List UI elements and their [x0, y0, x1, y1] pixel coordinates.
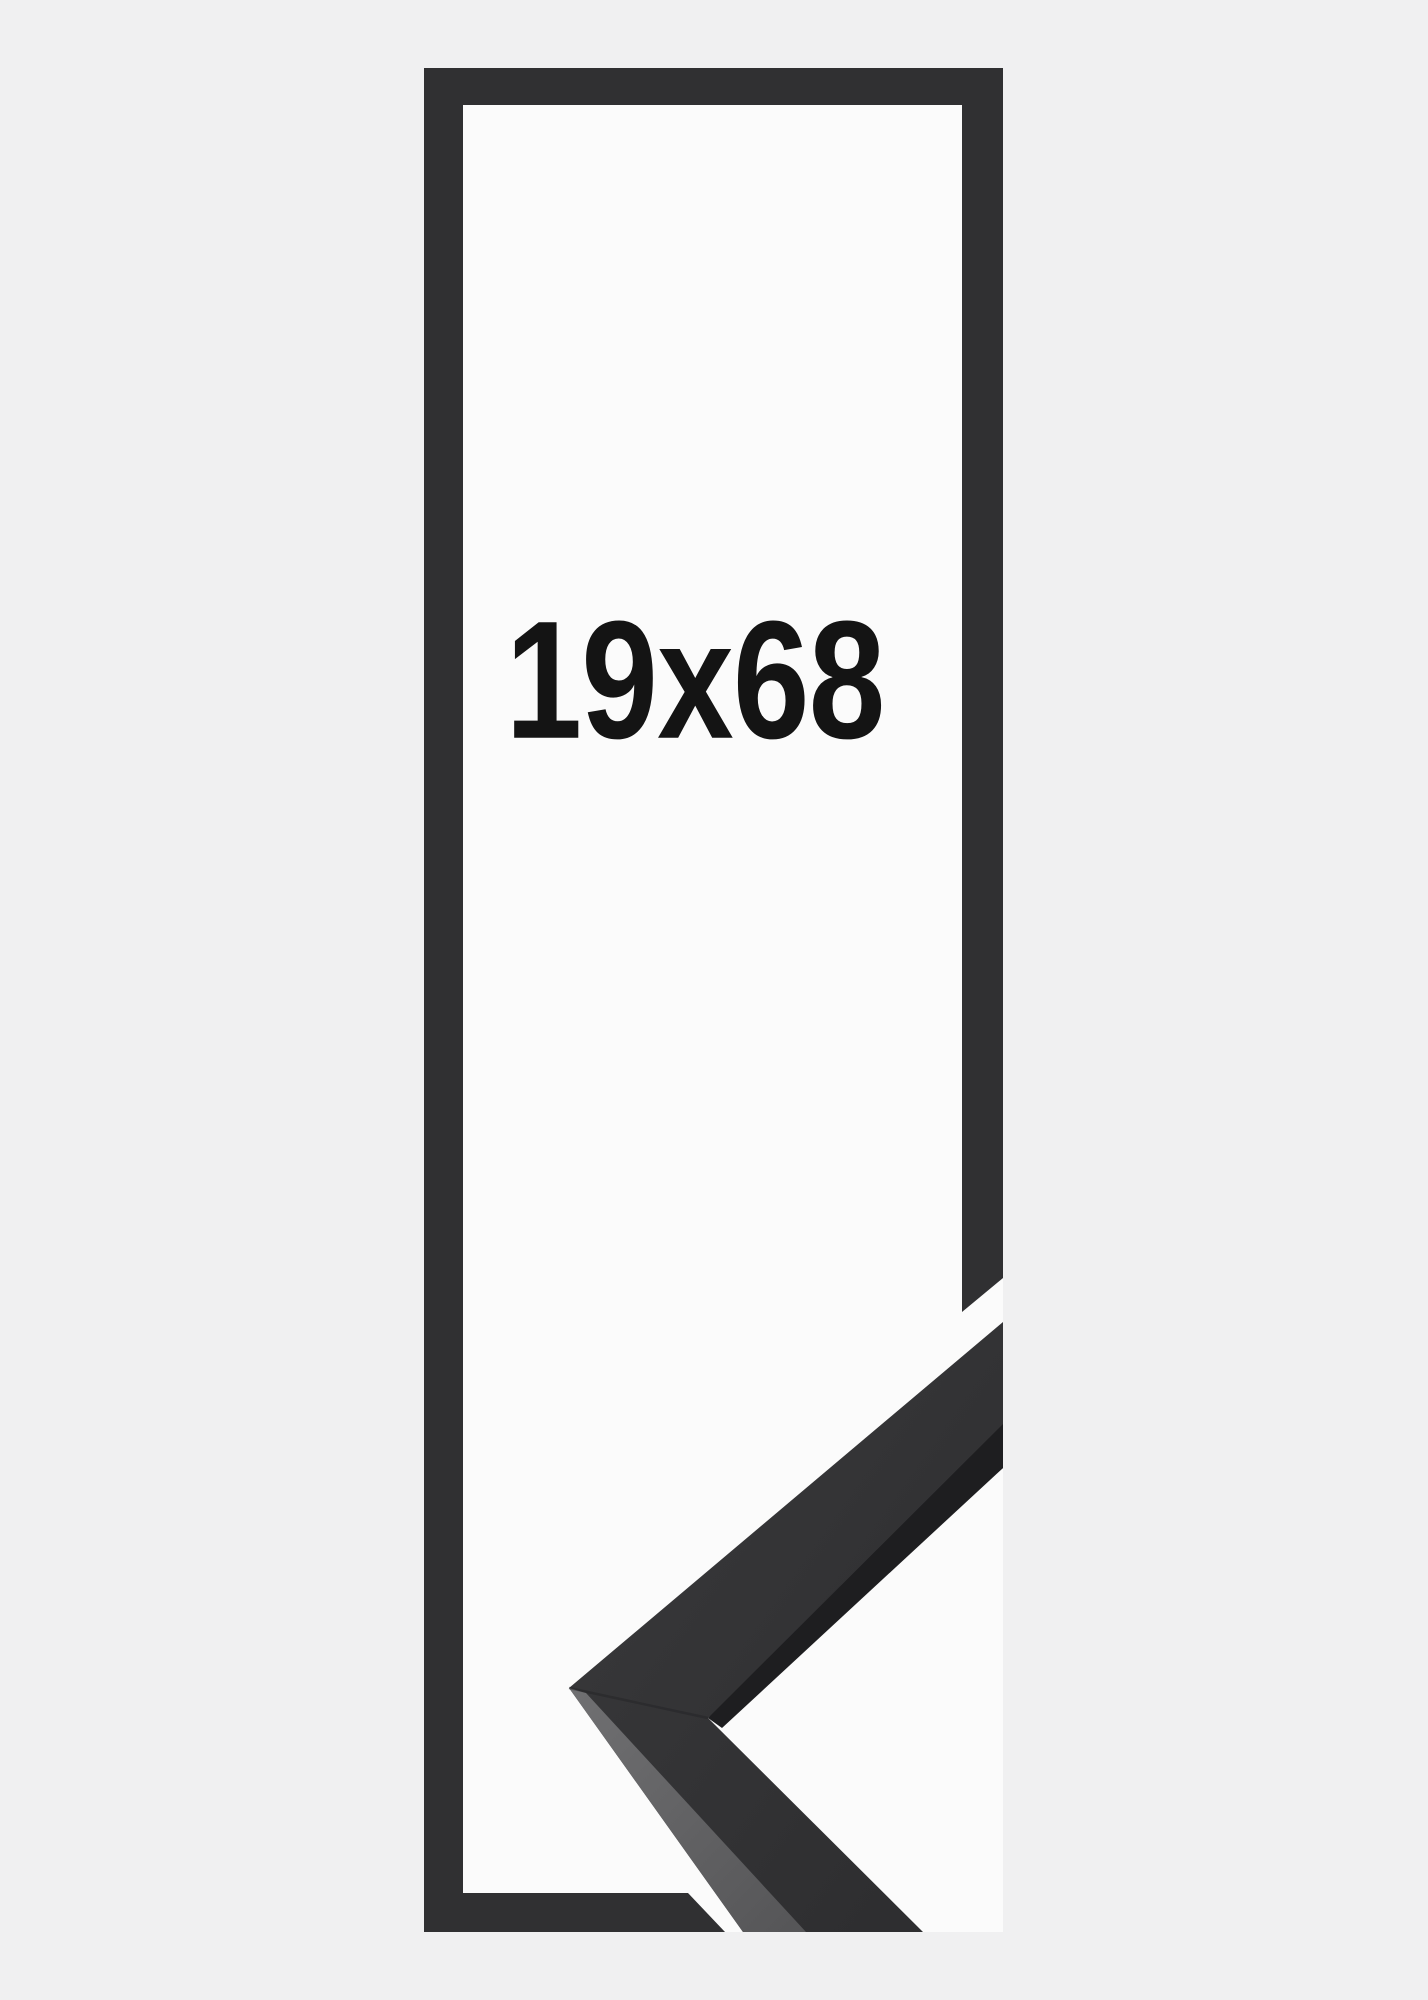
product-image: 19x68	[0, 0, 1428, 2000]
frame-border-top	[424, 68, 1003, 105]
frame-border-left	[424, 68, 463, 1932]
frame-illustration	[0, 0, 1428, 2000]
frame-border-bottom	[424, 1893, 725, 1932]
size-label-text: 19x68	[506, 584, 885, 777]
frame-border-right	[962, 68, 1003, 1312]
size-label: 19x68	[464, 584, 926, 777]
